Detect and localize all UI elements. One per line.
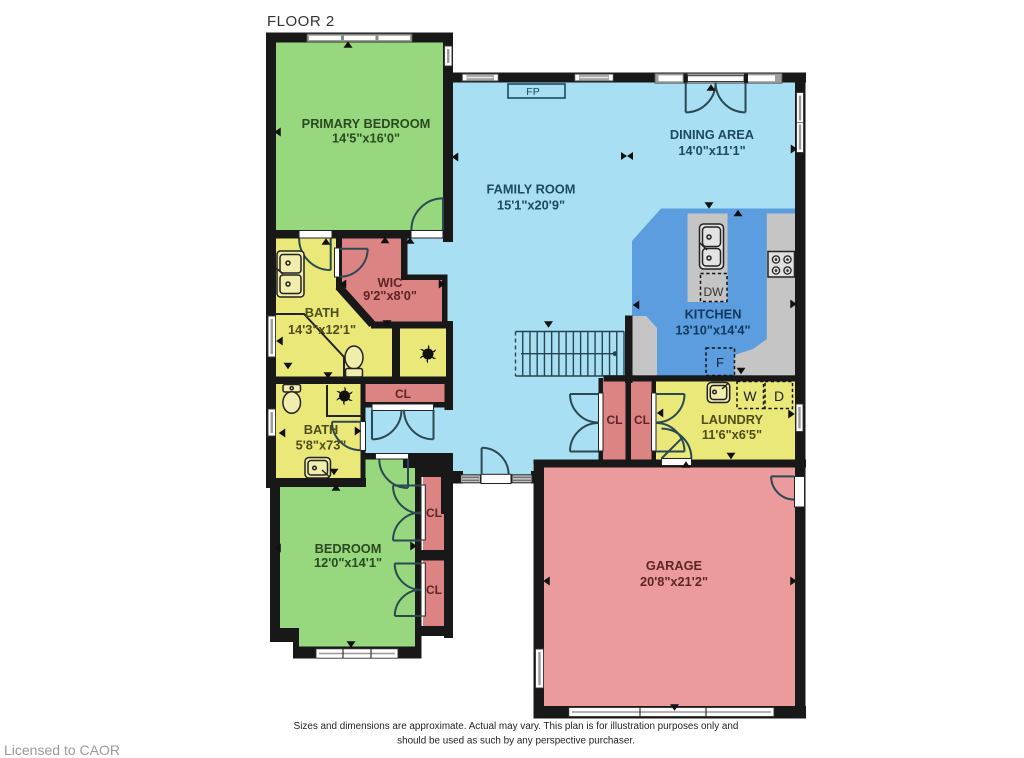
svg-text:FLOOR 2: FLOOR 2 — [267, 13, 335, 30]
svg-text:13'10"x14'4": 13'10"x14'4" — [675, 323, 750, 338]
svg-text:BATH: BATH — [304, 422, 339, 437]
svg-text:Sizes and dimensions are appro: Sizes and dimensions are approximate. Ac… — [294, 721, 739, 732]
svg-text:5'8"x73": 5'8"x73" — [296, 438, 347, 453]
svg-text:DINING AREA: DINING AREA — [670, 127, 754, 142]
svg-text:CL: CL — [634, 413, 650, 427]
svg-text:PRIMARY BEDROOM: PRIMARY BEDROOM — [302, 116, 431, 131]
svg-text:FAMILY ROOM: FAMILY ROOM — [487, 182, 576, 197]
svg-text:KITCHEN: KITCHEN — [685, 307, 742, 322]
svg-text:W: W — [743, 388, 757, 404]
svg-text:F: F — [716, 355, 724, 370]
svg-text:CL: CL — [607, 413, 623, 427]
svg-text:CL: CL — [426, 583, 442, 597]
svg-text:CL: CL — [395, 387, 411, 401]
svg-text:14'5"x16'0": 14'5"x16'0" — [332, 131, 400, 146]
svg-text:LAUNDRY: LAUNDRY — [701, 412, 764, 427]
svg-text:Licensed to CAOR: Licensed to CAOR — [4, 742, 120, 758]
svg-text:12'0"x14'1": 12'0"x14'1" — [314, 555, 382, 570]
svg-text:CL: CL — [426, 506, 442, 520]
svg-text:FP: FP — [526, 86, 539, 98]
svg-text:D: D — [774, 388, 784, 404]
svg-text:15'1"x20'9": 15'1"x20'9" — [497, 198, 565, 213]
svg-text:20'8"x21'2": 20'8"x21'2" — [640, 574, 708, 589]
svg-text:14'0"x11'1": 14'0"x11'1" — [678, 143, 745, 158]
svg-text:DW: DW — [704, 285, 725, 299]
svg-text:14'3"x12'1": 14'3"x12'1" — [288, 322, 356, 337]
svg-text:should be used as such by any: should be used as such by any perspectiv… — [397, 736, 635, 747]
svg-text:GARAGE: GARAGE — [646, 558, 703, 573]
svg-text:9'2"x8'0": 9'2"x8'0" — [363, 288, 417, 303]
svg-text:BATH: BATH — [305, 305, 340, 320]
svg-text:11'6"x6'5": 11'6"x6'5" — [702, 427, 762, 442]
svg-text:BEDROOM: BEDROOM — [315, 541, 382, 556]
